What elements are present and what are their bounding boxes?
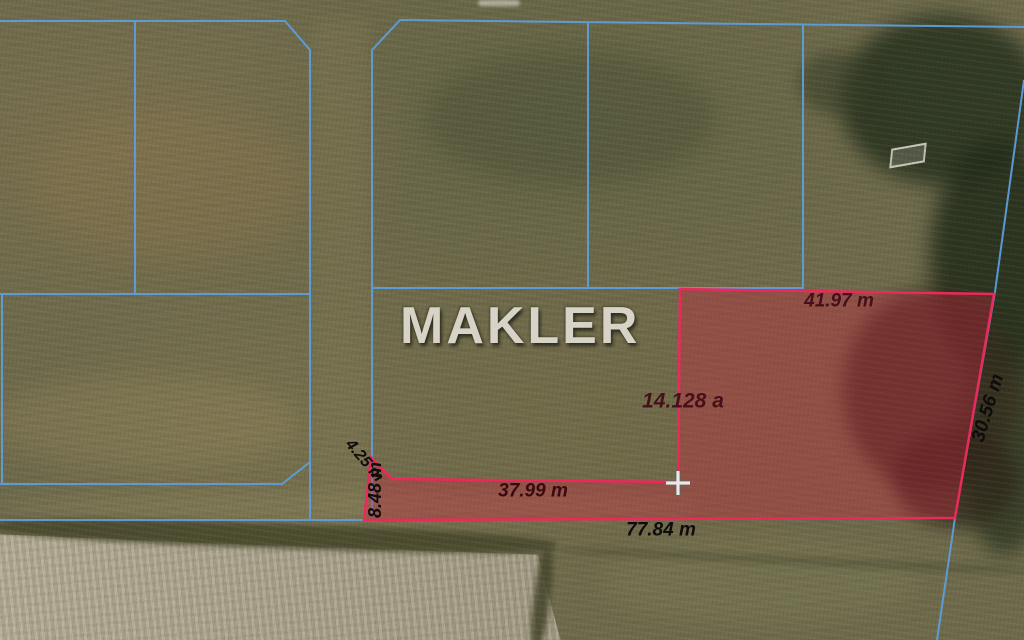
boundary-line — [372, 20, 1024, 50]
boundary-line — [0, 462, 310, 484]
measurement-strip-top-edge: 37.99 m — [498, 482, 568, 501]
aerial-map[interactable]: MAKLER 41.97 m 30.56 m 14.128 a 37.99 m … — [0, 0, 1024, 640]
measurement-bottom-edge: 77.84 m — [626, 521, 696, 540]
measurement-top-edge: 41.97 m — [804, 292, 874, 311]
cadastral-overlay — [0, 0, 1024, 640]
boundary-line — [0, 21, 310, 519]
parcel-area-label: 14.128 a — [642, 391, 724, 412]
